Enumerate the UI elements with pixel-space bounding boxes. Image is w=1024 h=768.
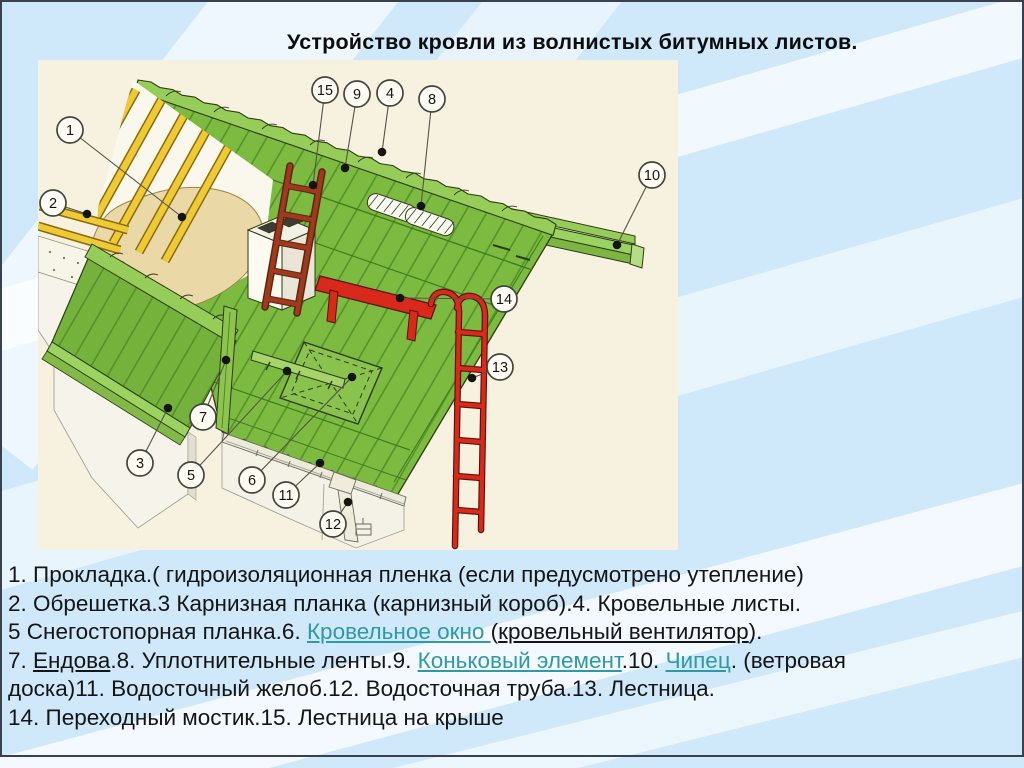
callout-12: 12 — [320, 511, 346, 537]
legend-line-3: 5 Снегостопорная планка.6. Кровельное ок… — [8, 618, 1020, 647]
callout-8-number: 8 — [428, 92, 436, 108]
callout-11-number: 11 — [278, 488, 293, 504]
legend-text: доска)11. Водосточный желоб.12. Водосточ… — [8, 676, 715, 701]
callout-1-number: 1 — [66, 123, 74, 139]
legend-text-underlined: кровельный вентилятор — [498, 619, 749, 644]
callout-4: 4 — [377, 80, 403, 106]
legend-text: .10. — [622, 648, 666, 673]
callout-14-number: 14 — [496, 292, 512, 308]
callout-12-number: 12 — [325, 517, 341, 533]
callout-3: 3 — [127, 450, 153, 476]
callout-6-number: 6 — [248, 473, 256, 489]
callout-15-number: 15 — [317, 83, 333, 99]
callout-11: 11 — [273, 482, 299, 508]
callout-15: 15 — [312, 77, 338, 103]
legend-text: 2. Обрешетка.3 Карнизная планка (карнизн… — [8, 591, 801, 616]
callout-6: 6 — [239, 467, 265, 493]
callout-14: 14 — [491, 286, 517, 312]
callout-13: 13 — [487, 354, 513, 380]
legend-text: 14. Переходный мостик.15. Лестница на кр… — [8, 705, 504, 730]
link-konkovyi-element[interactable]: Коньковый элемент — [418, 648, 622, 673]
legend-line-4: 7. Ендова.8. Уплотнительные ленты.9. Кон… — [8, 647, 1020, 676]
legend-line-1: 1. Прокладка.( гидроизоляционная пленка … — [8, 561, 1020, 590]
legend-text: . (ветровая — [731, 648, 846, 673]
callout-3-number: 3 — [136, 456, 144, 472]
callout-10-number: 10 — [644, 168, 660, 184]
callout-9-number: 9 — [353, 87, 361, 103]
legend-text: 1. Прокладка.( гидроизоляционная пленка … — [8, 562, 804, 587]
link-krovelnoe-okno[interactable]: Кровельное окно — [307, 619, 491, 644]
legend-line-5: доска)11. Водосточный желоб.12. Водосточ… — [8, 675, 1020, 704]
link-chipets[interactable]: Чипец — [666, 648, 731, 673]
legend-text: 5 Снегостопорная планка.6. — [8, 619, 307, 644]
slide-background: Устройство кровли из волнистых битумных … — [0, 0, 1024, 768]
callout-1: 1 — [57, 117, 83, 143]
legend: 1. Прокладка.( гидроизоляционная пленка … — [8, 561, 1020, 732]
callout-2-number: 2 — [49, 196, 57, 212]
callout-4-number: 4 — [386, 86, 394, 102]
page-title: Устройство кровли из волнистых битумных … — [287, 30, 858, 55]
callout-5-number: 5 — [187, 468, 195, 484]
callout-5: 5 — [178, 462, 204, 488]
illustration-panel: 1 2 3 4 5 6 7 8 9 10 11 12 13 14 15 — [38, 60, 678, 550]
legend-line-6: 14. Переходный мостик.15. Лестница на кр… — [8, 704, 1020, 733]
callout-7-number: 7 — [199, 410, 207, 426]
roof-diagram: 1 2 3 4 5 6 7 8 9 10 11 12 13 14 15 — [38, 60, 678, 550]
legend-line-2: 2. Обрешетка.3 Карнизная планка (карнизн… — [8, 590, 1020, 619]
callout-10: 10 — [639, 162, 665, 188]
callout-7: 7 — [190, 404, 216, 430]
callout-9: 9 — [344, 81, 370, 107]
legend-text: 7. — [8, 648, 33, 673]
legend-text: .8. Уплотнительные ленты.9. — [110, 648, 417, 673]
callout-13-number: 13 — [492, 360, 508, 376]
legend-text: ). — [749, 619, 763, 644]
legend-text-underlined: Ендова — [33, 648, 110, 673]
callout-8: 8 — [419, 86, 445, 112]
callout-2: 2 — [40, 190, 66, 216]
